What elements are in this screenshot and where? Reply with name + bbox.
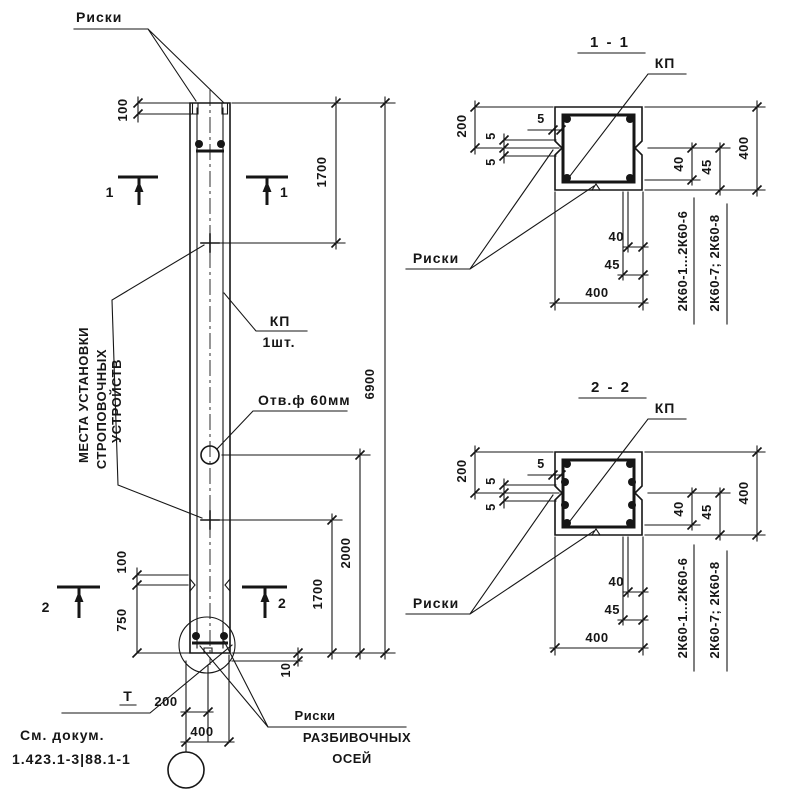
strop-note-line1: МЕСТА УСТАНОВКИ bbox=[76, 327, 91, 463]
dim-400: 400 bbox=[190, 724, 213, 739]
section-2-2-dim-5-cover: 5 bbox=[537, 457, 544, 471]
section-2-2-kp-label: КП bbox=[655, 400, 676, 416]
footnote-mark: Т bbox=[123, 688, 133, 704]
section-2-2-dim-5-down: 5 bbox=[484, 503, 498, 510]
section-1-1-title: 1 - 1 bbox=[590, 34, 630, 51]
section-1-1-dim-400h: 400 bbox=[585, 285, 608, 300]
axis-riski-line1: Риски bbox=[295, 708, 336, 723]
section-2-2-dims-bottom: 40 45 400 bbox=[550, 537, 648, 655]
section-1-1-dims-right: 40 45 400 bbox=[645, 101, 765, 196]
section-1-1-dim-45v: 45 bbox=[699, 159, 714, 174]
doc-reference: Т См. докум. 1.423.1-3|88.1-1 bbox=[12, 645, 232, 767]
dim-2000: 2000 bbox=[338, 538, 353, 569]
section-2-2-riski-callout: Риски bbox=[406, 495, 594, 614]
riski-top-label: Риски bbox=[76, 9, 122, 25]
dim-10: 10 bbox=[279, 663, 293, 678]
elevation-dims-right: 1700 6900 2000 1700 10 bbox=[220, 97, 395, 677]
section-2-2-marks-group2: 2К60-7; 2К60-8 bbox=[707, 561, 722, 658]
section-2-2-dim-45v: 45 bbox=[699, 504, 714, 519]
section-1-1-dim-400v: 400 bbox=[736, 136, 751, 159]
section-1-1-marks: 2К60-1...2К60-6 2К60-7; 2К60-8 bbox=[675, 198, 727, 324]
section-2-2-dim-45h: 45 bbox=[605, 602, 620, 617]
section-1-1-dim-40v: 40 bbox=[671, 156, 686, 171]
axis-riski-line2: РАЗБИВОЧНЫХ bbox=[303, 730, 411, 745]
dim-1700-top: 1700 bbox=[314, 157, 329, 188]
section-1-1-marks-group2: 2К60-7; 2К60-8 bbox=[707, 214, 722, 311]
section-1-1-riski-callout: Риски bbox=[406, 150, 594, 269]
section-2-2-marks: 2К60-1...2К60-6 2К60-7; 2К60-8 bbox=[675, 545, 727, 671]
section-1-1-kp-label: КП bbox=[655, 55, 676, 71]
elevation-dims-bottom: 200 400 bbox=[154, 655, 234, 788]
hole-callout: Отв.ф 60мм bbox=[217, 392, 351, 449]
section-1-1-dims-bottom: 40 45 400 bbox=[550, 192, 648, 310]
section-1-1-view: 1 - 1 КП 200 5 5 5 bbox=[406, 34, 765, 324]
section-1-1-dim-5-cover: 5 bbox=[537, 112, 544, 126]
doc-ref-line2: 1.423.1-3|88.1-1 bbox=[12, 751, 131, 767]
section-2-2-dim-40v: 40 bbox=[671, 501, 686, 516]
section-2-cut-marks: 2 2 bbox=[42, 587, 287, 618]
riski-top-callout: Риски bbox=[74, 9, 224, 103]
drawing-canvas: Риски 1 1 2 2 МЕСТА УСТАНОВКИ СТРОПОВОЧН… bbox=[0, 0, 800, 800]
dim-6900: 6900 bbox=[362, 369, 377, 400]
dim-1700-bottom: 1700 bbox=[310, 579, 325, 610]
kp-qty: 1шт. bbox=[263, 334, 296, 350]
section-1-1-dim-45h: 45 bbox=[605, 257, 620, 272]
elevation-view: Риски 1 1 2 2 МЕСТА УСТАНОВКИ СТРОПОВОЧН… bbox=[12, 9, 411, 788]
column-outline bbox=[190, 90, 230, 665]
strop-point-lower bbox=[201, 511, 219, 529]
dim-100-top: 100 bbox=[115, 98, 130, 121]
axis-riski-callout: Риски РАЗБИВОЧНЫХ ОСЕЙ bbox=[200, 641, 411, 766]
section-2-mark-right: 2 bbox=[278, 595, 287, 611]
strop-note-line2: СТРОПОВОЧНЫХ bbox=[94, 349, 109, 469]
section-2-2-dim-400h: 400 bbox=[585, 630, 608, 645]
section-1-mark-right: 1 bbox=[280, 184, 289, 200]
section-2-2-dim-200: 200 bbox=[454, 459, 469, 482]
section-2-2-marks-group1: 2К60-1...2К60-6 bbox=[675, 558, 690, 659]
section-1-1-dim-5-up: 5 bbox=[484, 132, 498, 139]
section-2-2-dim-40h: 40 bbox=[609, 574, 624, 589]
section-1-mark-left: 1 bbox=[106, 184, 115, 200]
axis-riski-line3: ОСЕЙ bbox=[332, 751, 372, 766]
dim-100-bottom: 100 bbox=[114, 550, 129, 573]
elevation-dims-left: 100 100 750 bbox=[114, 97, 193, 658]
kp-callout: КП 1шт. bbox=[224, 293, 307, 350]
section-2-2-riski-label: Риски bbox=[413, 595, 459, 611]
doc-ref-line1: См. докум. bbox=[20, 727, 105, 743]
section-1-1-dim-5-down: 5 bbox=[484, 158, 498, 165]
hole-label: Отв.ф 60мм bbox=[258, 392, 351, 408]
drawing-sheet: Риски 1 1 2 2 МЕСТА УСТАНОВКИ СТРОПОВОЧН… bbox=[0, 0, 800, 800]
section-1-1-marks-group1: 2К60-1...2К60-6 bbox=[675, 211, 690, 312]
kp-label: КП bbox=[270, 313, 291, 329]
section-2-2-title: 2 - 2 bbox=[591, 379, 631, 396]
section-2-2-dims-right: 40 45 400 bbox=[645, 446, 765, 541]
section-2-mark-left: 2 bbox=[42, 599, 51, 615]
section-2-2-dim-5-up: 5 bbox=[484, 477, 498, 484]
axis-bubble bbox=[168, 752, 204, 788]
section-1-1-riski-label: Риски bbox=[413, 250, 459, 266]
section-2-2-dim-400v: 400 bbox=[736, 481, 751, 504]
strop-note: МЕСТА УСТАНОВКИ СТРОПОВОЧНЫХ УСТРОЙСТВ bbox=[76, 245, 204, 518]
section-1-1-dim-200: 200 bbox=[454, 114, 469, 137]
section-1-1-dim-40h: 40 bbox=[609, 229, 624, 244]
section-2-2-cage bbox=[561, 460, 636, 527]
dim-750: 750 bbox=[114, 608, 129, 631]
section-2-2-view: 2 - 2 КП 200 5 5 5 bbox=[406, 379, 765, 671]
strop-point-upper bbox=[201, 234, 219, 252]
